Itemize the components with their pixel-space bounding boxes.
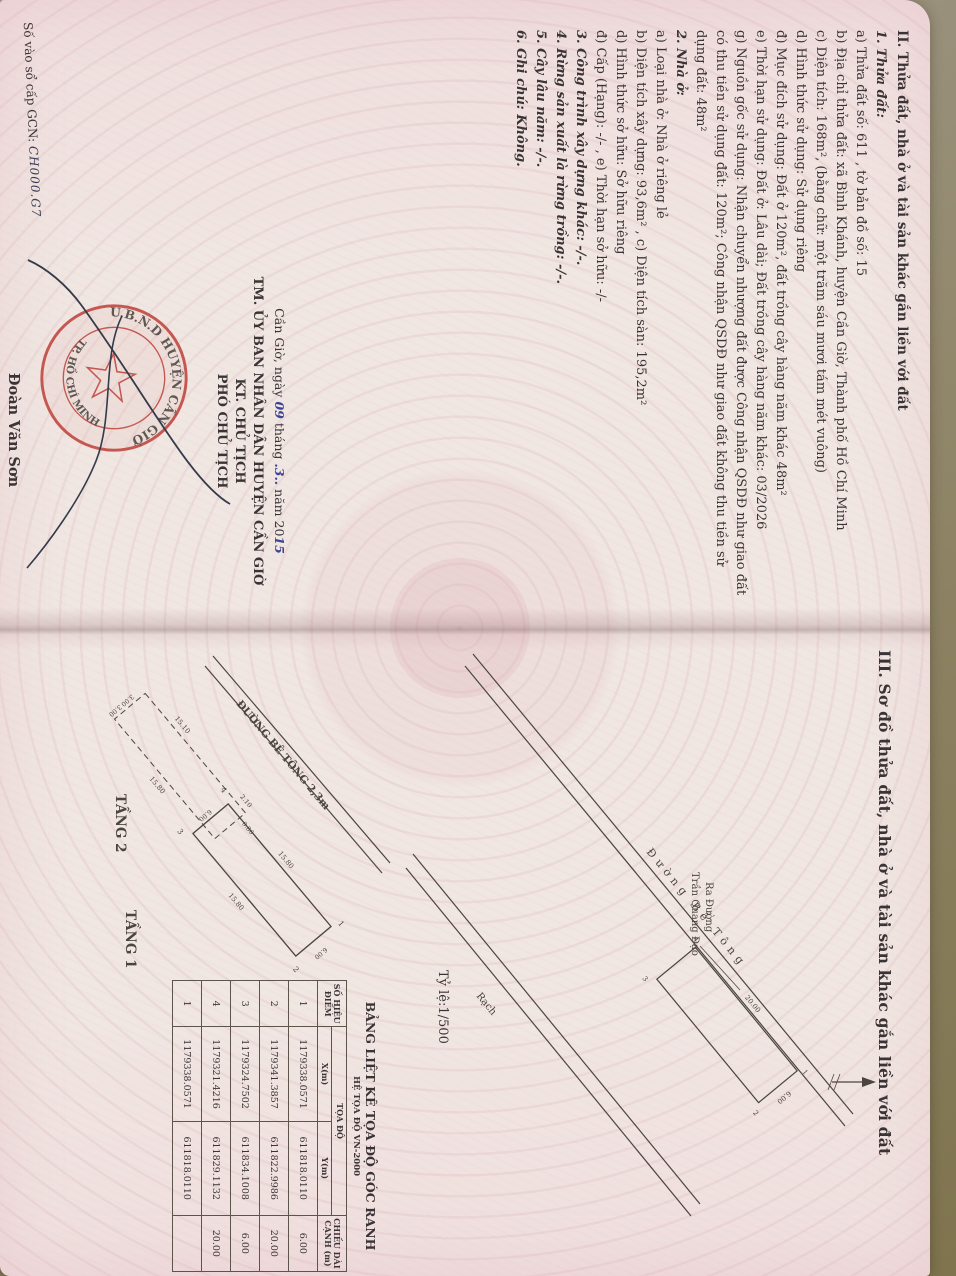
north-arrow-icon (828, 1074, 876, 1090)
parcel-outline: 20.00 6.00 4 1 2 3 (640, 932, 816, 1123)
col-header-length: CHIỀU DÀI CẠNH (m) (317, 1215, 346, 1271)
section3-heading: III. Sơ đồ thửa đất, nhà ở và tài sản kh… (875, 650, 894, 1268)
floor1-corner-1: 1 (336, 919, 346, 928)
coordinate-rows: 1 1179338.0571 611818.0110 6.00 2 117934… (172, 981, 317, 1272)
canal-label: Rạch (474, 991, 499, 1018)
exit-label-line2: Trần Quang Đạo (689, 872, 701, 956)
section2-item: 3. Công trình xây dựng khác: -/-. (570, 30, 590, 596)
cell-point-number: 2 (259, 981, 288, 1027)
handwritten-day: 09 (272, 401, 287, 418)
authority-line-1: TM. ỦY BAN NHÂN DÂN HUYỆN CẦN GIỜ (248, 248, 266, 614)
section2-item: a) Loại nhà ở: Nhà ở riêng lẻ (650, 30, 670, 596)
table-row: 3 1179324.7502 611834.1008 6.00 (230, 981, 259, 1272)
section2-item: 1. Thửa đất: (870, 30, 890, 596)
cell-edge-length: 6.00 (288, 1215, 317, 1271)
parcel-corner-3: 3 (640, 975, 649, 984)
parcel-dim-side: 6.00 (775, 1089, 792, 1105)
exit-label-line1: Ra Đường (703, 882, 714, 933)
col-header-coords: TỌA ĐỘ (332, 1027, 347, 1215)
floor1-dim-top: 15.80 (276, 850, 295, 870)
floor1-outline: 15.80 15.80 6.00 6.00 1 2 3 4 (171, 783, 353, 980)
handwritten-year: 15 (272, 536, 287, 553)
floor2-label: TẦNG 2 (112, 794, 130, 852)
cell-point-number: 1 (172, 981, 201, 1027)
floor1-corner-4: 4 (219, 785, 229, 795)
floor1-label: TẦNG 1 (122, 910, 140, 968)
gcn-number-line: Số vào sổ cấp GCN: CH000.G7 (21, 22, 44, 218)
cell-y: 611818.0110 (172, 1121, 201, 1215)
section2-items: 1. Thửa đất: a) Thửa đất số: 611 , tờ bả… (510, 30, 890, 596)
floor1-corner-3: 3 (175, 827, 185, 837)
section2-item: c) Diện tích: 168m², (bằng chữ: một trăm… (810, 30, 830, 596)
section2-item: 6. Ghi chú: Không. (510, 30, 530, 596)
col-header-x: X(m) (317, 1027, 332, 1121)
scale-note: Tỷ lệ:1/500 (435, 970, 450, 1044)
date-suffix: năm 20 (272, 489, 287, 536)
date-prefix: Cần Giờ, ngày (272, 308, 287, 397)
cell-x: 1179321.4216 (201, 1027, 230, 1121)
section2-block: II. Thửa đất, nhà ở và tài sản khác gắn … (510, 30, 910, 596)
floor1-dim-left: 6.00 (197, 808, 213, 823)
floor1-dim-bottom: 15.80 (226, 892, 245, 912)
col-header-y: Y(m) (317, 1121, 332, 1215)
floor2-dim-top: 15.10 (173, 715, 192, 735)
section2-item: đ) Mục đích sử dụng: Đất ở 120m², đất tr… (770, 30, 790, 596)
section2-heading: II. Thửa đất, nhà ở và tài sản khác gắn … (894, 30, 910, 596)
gcn-value-handwritten: CH000.G7 (26, 146, 43, 218)
date-mid: tháng (272, 423, 287, 460)
cell-point-number: 3 (230, 981, 259, 1027)
cell-edge-length: 20.00 (259, 1215, 288, 1271)
floor1-dim-right: 6.00 (313, 946, 329, 961)
section2-item: b) Địa chỉ thửa đất: xã Bình Khánh, huyệ… (830, 30, 850, 596)
cell-point-number: 4 (201, 981, 230, 1027)
handwritten-month: .3.. (272, 463, 287, 485)
section2-item: 4. Rừng sản xuất là rừng trồng: -/-. (550, 30, 570, 596)
cell-edge-length: 6.00 (230, 1215, 259, 1271)
signer-name: Đoàn Văn Sơn (5, 280, 22, 580)
cell-y: 611818.0110 (288, 1121, 317, 1215)
cell-x: 1179341.3857 (259, 1027, 288, 1121)
col-header-point: SỐ HIỆU ĐIỂM (317, 981, 346, 1027)
section2-item: e) Thời hạn sử dụng: Đất ở: Lâu dài; Đất… (750, 30, 770, 596)
section2-item: a) Thửa đất số: 611 , tờ bản đồ số: 15 (850, 30, 870, 596)
section2-item: d) Hình thức sử dụng: Sử dụng riêng (790, 30, 810, 596)
section2-item: đ) Cấp (Hạng): -/- , e) Thời hạn sở hữu:… (590, 30, 610, 596)
cell-y: 611822.9986 (259, 1121, 288, 1215)
table-subtitle: HỆ TỌA ĐỘ VN-2000 (351, 980, 361, 1272)
photo-background: II. Thửa đất, nhà ở và tài sản khác gắn … (0, 0, 956, 1276)
coordinate-table-block: BẢNG LIỆT KÊ TỌA ĐỘ GÓC RANH HỆ TỌA ĐỘ V… (172, 980, 378, 1272)
table-row: 4 1179321.4216 611829.1132 20.00 (201, 981, 230, 1272)
date-line: Cần Giờ, ngày 09 tháng .3.. năm 2015 (272, 248, 287, 614)
cell-edge-length (172, 1215, 201, 1271)
cell-x: 1179324.7502 (230, 1027, 259, 1121)
table-row: 2 1179341.3857 611822.9986 20.00 (259, 981, 288, 1272)
coordinate-table: SỐ HIỆU ĐIỂM TỌA ĐỘ CHIỀU DÀI CẠNH (m) X… (172, 980, 347, 1272)
land-certificate-document: II. Thửa đất, nhà ở và tài sản khác gắn … (0, 0, 930, 1276)
section2-item: 5. Cây lâu năm: -/-. (530, 30, 550, 596)
floor-plans: ĐƯỜNG BÊ TÔNG 2,3m 15.10 15.80 3.00 3.00… (68, 648, 408, 996)
parcel-corner-1: 1 (800, 1068, 809, 1077)
section2-item: g) Nguồn gốc sử dụng: Nhận chuyển nhượng… (690, 30, 750, 596)
floor2-dim-right1: 2.10 (238, 793, 253, 809)
table-row: 1 1179338.0571 611818.0110 (172, 981, 201, 1272)
cell-y: 611829.1132 (201, 1121, 230, 1215)
section2-item: b) Diện tích xây dựng: 93,6m² , c) Diện … (630, 30, 650, 596)
gcn-label: Số vào sổ cấp GCN: (21, 22, 40, 143)
road-label-bold: ĐƯỜNG BÊ TÔNG 2,3m (234, 697, 334, 812)
section2-item: 2. Nhà ở: (670, 30, 690, 596)
cell-edge-length: 20.00 (201, 1215, 230, 1271)
floor1-corner-2: 2 (291, 965, 301, 975)
signature-ink (0, 246, 242, 586)
cell-y: 611834.1008 (230, 1121, 259, 1215)
parcel-corner-2: 2 (751, 1109, 760, 1118)
site-plan: Đường Bê Tông 20.00 6.00 4 1 2 3 Rạch Ra… (406, 644, 868, 1274)
cell-point-number: 1 (288, 981, 317, 1027)
section2-item: d) Hình thức sở hữu: Sở hữu riêng (610, 30, 630, 596)
table-title: BẢNG LIỆT KÊ TỌA ĐỘ GÓC RANH (363, 980, 378, 1272)
table-row: 1 1179338.0571 611818.0110 6.00 (288, 981, 317, 1272)
cell-x: 1179338.0571 (172, 1027, 201, 1121)
floor2-dim-left2: 3.00 (107, 703, 123, 718)
cell-x: 1179338.0571 (288, 1027, 317, 1121)
parcel-dim-top: 20.00 (743, 994, 762, 1015)
